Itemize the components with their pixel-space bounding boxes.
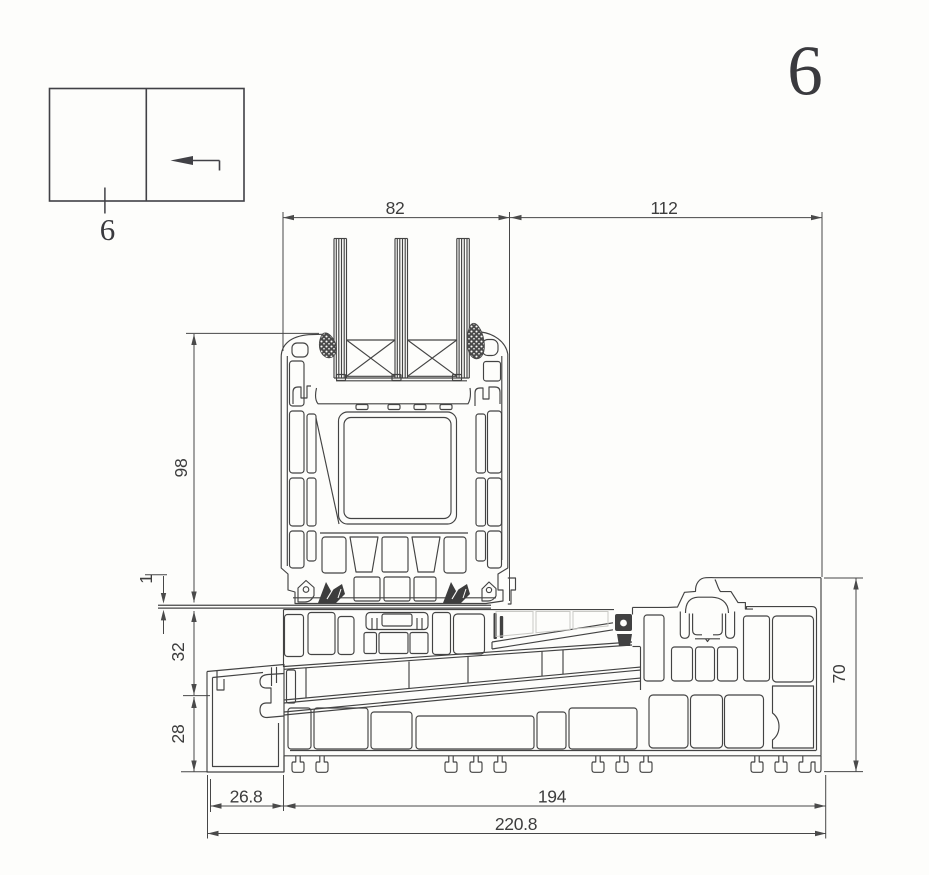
svg-text:1: 1 [136,574,156,583]
svg-text:28: 28 [168,725,188,744]
svg-text:6: 6 [100,212,116,247]
svg-text:82: 82 [386,198,405,218]
svg-text:98: 98 [171,459,191,478]
svg-text:220.8: 220.8 [495,814,537,834]
svg-text:70: 70 [829,664,849,683]
svg-text:32: 32 [168,643,188,662]
svg-text:6: 6 [787,33,823,111]
svg-text:194: 194 [538,787,567,807]
svg-text:26.8: 26.8 [230,787,263,807]
svg-text:112: 112 [651,198,678,218]
